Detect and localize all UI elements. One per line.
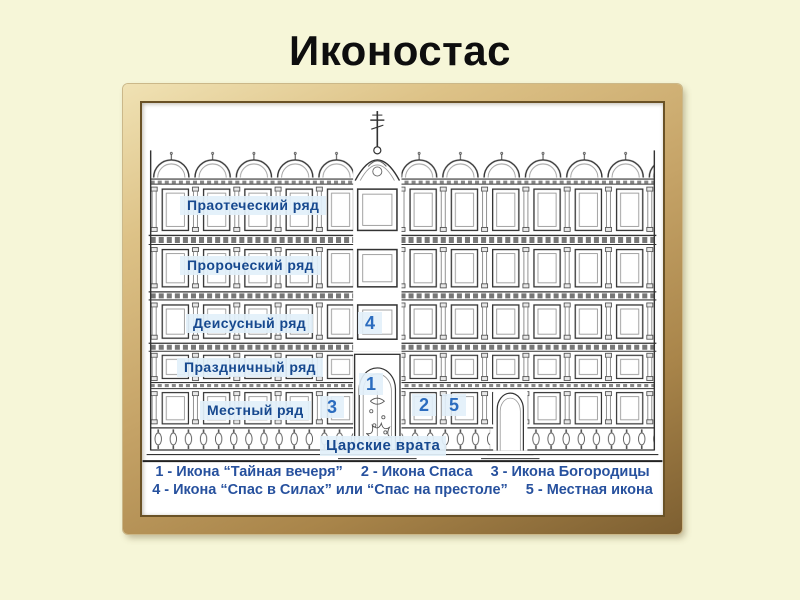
diagram-canvas: Праотеческий ряд Пророческий ряд Деисусн… (142, 103, 663, 515)
cornice-4 (151, 383, 655, 389)
cornice-3 (149, 343, 657, 351)
legend-item-4: 4 - Икона “Спас в Силах” или “Спас на пр… (152, 482, 508, 498)
marker-1: 1 (359, 373, 383, 395)
row-label-prazdnichny: Праздничный ряд (177, 358, 323, 377)
marker-3: 3 (320, 396, 344, 418)
legend-line-2: 4 - Икона “Спас в Силах” или “Спас на пр… (142, 481, 663, 499)
row-label-praotechesky: Праотеческий ряд (180, 196, 326, 215)
legend-item-2: 2 - Икона Спаса (361, 464, 473, 480)
page-title: Иконостас (0, 27, 800, 75)
marker-2: 2 (412, 394, 436, 416)
cross-finial (370, 111, 384, 154)
legend-item-1: 1 - Икона “Тайная вечеря” (155, 464, 342, 480)
row-label-prorochesky: Пророческий ряд (180, 256, 321, 275)
arch-band (151, 150, 655, 184)
legend-item-5: 5 - Местная икона (526, 482, 653, 498)
row-label-deisusny: Деисусный ряд (186, 314, 313, 333)
marker-5: 5 (442, 394, 466, 416)
cornice-2 (149, 292, 657, 300)
cornice-1 (149, 235, 657, 244)
picture-frame: Праотеческий ряд Пророческий ряд Деисусн… (123, 84, 682, 534)
row-label-mestny: Местный ряд (200, 401, 311, 420)
marker-4: 4 (358, 312, 382, 334)
legend-line-1: 1 - Икона “Тайная вечеря”2 - Икона Спаса… (142, 463, 663, 481)
royal-doors-label: Царские врата (320, 436, 446, 456)
legend-item-3: 3 - Икона Богородицы (491, 464, 650, 480)
legend: 1 - Икона “Тайная вечеря”2 - Икона Спаса… (142, 463, 663, 499)
